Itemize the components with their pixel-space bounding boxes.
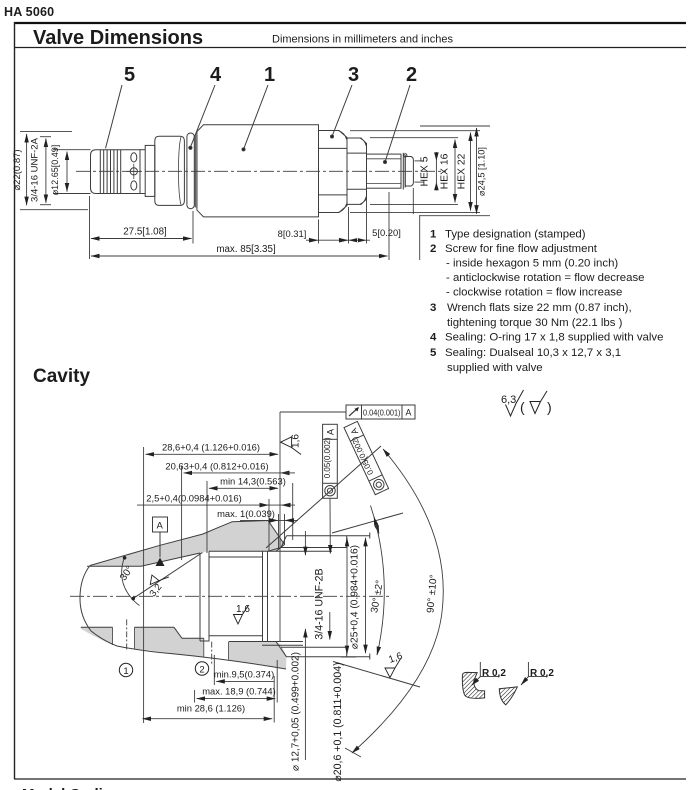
svg-text:R 0,2: R 0,2 bbox=[482, 668, 506, 679]
svg-text:- clockwise rotation = flow in: - clockwise rotation = flow increase bbox=[446, 287, 622, 299]
svg-text:Type designation (stamped): Type designation (stamped) bbox=[445, 229, 586, 241]
svg-text:8[0.31]: 8[0.31] bbox=[278, 228, 307, 239]
svg-text:R 0,2: R 0,2 bbox=[530, 668, 554, 679]
svg-text:28,6+0,4 (1.126+0.016): 28,6+0,4 (1.126+0.016) bbox=[162, 442, 260, 453]
svg-text:A: A bbox=[157, 521, 164, 532]
svg-text:A: A bbox=[406, 407, 412, 417]
svg-text:1: 1 bbox=[123, 666, 128, 677]
svg-text:1: 1 bbox=[430, 229, 437, 241]
svg-text:min 14,3(0.563): min 14,3(0.563) bbox=[220, 476, 286, 487]
svg-text:Wrench flats size 22 mm (0.87: Wrench flats size 22 mm (0.87 inch), bbox=[447, 302, 632, 314]
svg-text:⌀24,5 [1.10]: ⌀24,5 [1.10] bbox=[477, 147, 487, 196]
svg-text:max. 18,9 (0.744): max. 18,9 (0.744) bbox=[202, 686, 275, 697]
svg-text:Screw for fine flow adjustment: Screw for fine flow adjustment bbox=[445, 243, 598, 255]
svg-text:5[0.20]: 5[0.20] bbox=[372, 227, 401, 238]
svg-text:min.9,5(0.374): min.9,5(0.374) bbox=[214, 669, 274, 680]
svg-text:2: 2 bbox=[406, 64, 417, 86]
svg-text:): ) bbox=[547, 399, 552, 415]
svg-text:27.5[1.08]: 27.5[1.08] bbox=[123, 226, 167, 237]
svg-text:0.04(0.001): 0.04(0.001) bbox=[363, 407, 401, 417]
svg-text:5: 5 bbox=[430, 347, 437, 359]
svg-text:2: 2 bbox=[430, 243, 436, 255]
svg-text:Valve Dimensions: Valve Dimensions bbox=[33, 27, 203, 49]
svg-text:⌀ 12,7+0,05 (0.499+0.002): ⌀ 12,7+0,05 (0.499+0.002) bbox=[291, 652, 302, 771]
svg-text:max. 85[3.35]: max. 85[3.35] bbox=[216, 244, 276, 255]
svg-text:max. 1(0.039): max. 1(0.039) bbox=[217, 508, 275, 519]
svg-text:4: 4 bbox=[210, 64, 222, 86]
svg-text:20,63+0,4 (0.812+0.016): 20,63+0,4 (0.812+0.016) bbox=[165, 460, 268, 471]
svg-text:(: ( bbox=[520, 399, 525, 415]
svg-text:HA 5060: HA 5060 bbox=[4, 5, 54, 19]
svg-text:4: 4 bbox=[430, 332, 437, 344]
svg-text:2: 2 bbox=[199, 665, 204, 676]
svg-text:tightening torque 30 Nm (22.1: tightening torque 30 Nm (22.1 lbs ) bbox=[447, 317, 623, 329]
svg-text:Model Coding: Model Coding bbox=[22, 786, 121, 790]
svg-text:⌀25+0,4 (0.984+0.016): ⌀25+0,4 (0.984+0.016) bbox=[350, 545, 361, 649]
svg-text:- inside hexagon 5 mm (0.20 i: - inside hexagon 5 mm (0.20 inch) bbox=[446, 258, 618, 270]
svg-text:1: 1 bbox=[264, 64, 275, 86]
svg-text:min 28,6 (1.126): min 28,6 (1.126) bbox=[177, 703, 245, 714]
svg-text:- anticlockwise rotation = flo: - anticlockwise rotation = flow decrease bbox=[446, 272, 644, 284]
svg-text:supplied with valve: supplied with valve bbox=[447, 362, 543, 374]
svg-text:⌀12.65[0.49]: ⌀12.65[0.49] bbox=[50, 145, 60, 195]
svg-text:2,5+0,4(0.0984+0.016): 2,5+0,4(0.0984+0.016) bbox=[146, 493, 241, 504]
svg-text:HEX 16: HEX 16 bbox=[440, 153, 451, 189]
svg-text:HEX 22: HEX 22 bbox=[457, 153, 468, 189]
svg-text:⌀20,6 +0,1 (0.811+0.004): ⌀20,6 +0,1 (0.811+0.004) bbox=[332, 662, 344, 781]
svg-text:5: 5 bbox=[124, 64, 135, 86]
svg-text:Cavity: Cavity bbox=[33, 366, 90, 387]
svg-text:Sealing: Dualseal 10,3 x 12,7: Sealing: Dualseal 10,3 x 12,7 x 3,1 bbox=[445, 347, 621, 359]
svg-text:0.05(0.002): 0.05(0.002) bbox=[323, 437, 332, 478]
svg-text:3/4-16 UNF-2A: 3/4-16 UNF-2A bbox=[30, 137, 41, 202]
svg-text:⌀22(0.87): ⌀22(0.87) bbox=[12, 149, 23, 190]
svg-text:Dimensions in millimeters and: Dimensions in millimeters and inches bbox=[272, 34, 453, 46]
svg-text:3/4-16 UNF-2B: 3/4-16 UNF-2B bbox=[314, 568, 326, 639]
svg-text:HEX 5: HEX 5 bbox=[420, 156, 431, 186]
svg-text:6,3: 6,3 bbox=[501, 394, 516, 406]
svg-text:Sealing: O-ring 17 x 1,8 suppl: Sealing: O-ring 17 x 1,8 supplied with v… bbox=[445, 332, 663, 344]
svg-text:1,6: 1,6 bbox=[291, 434, 302, 448]
svg-text:A: A bbox=[326, 429, 336, 435]
svg-text:3: 3 bbox=[348, 64, 359, 86]
svg-text:3: 3 bbox=[430, 302, 436, 314]
